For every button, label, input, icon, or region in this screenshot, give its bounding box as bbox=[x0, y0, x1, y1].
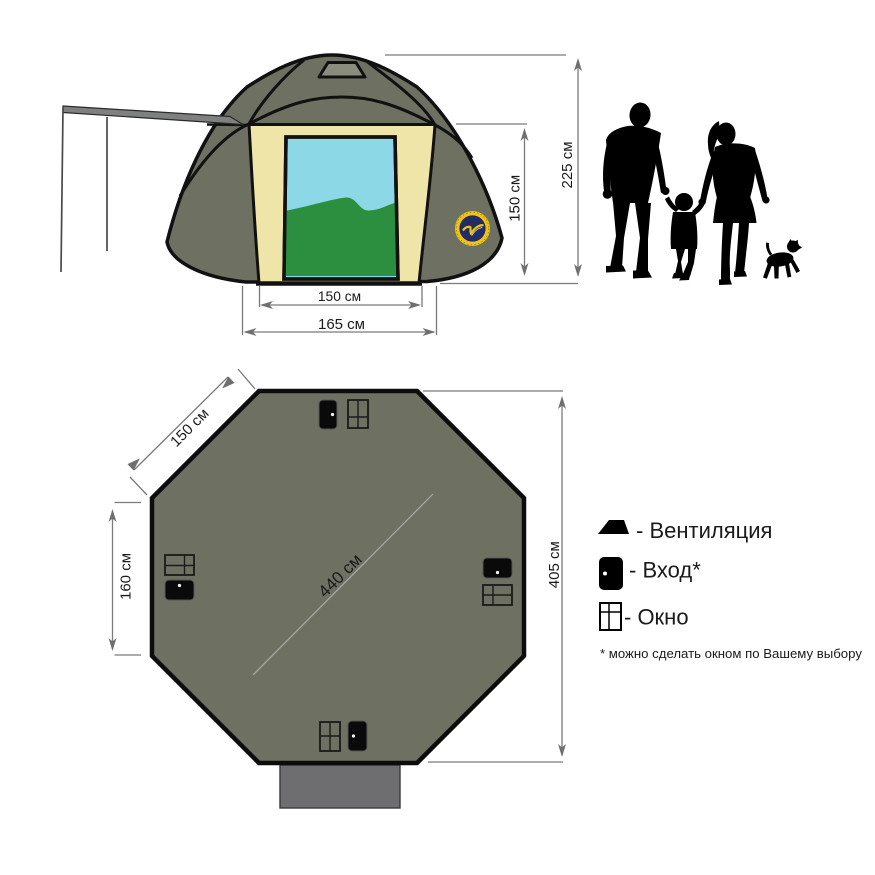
svg-text:150 см: 150 см bbox=[507, 175, 524, 222]
svg-text:405 см: 405 см bbox=[546, 541, 563, 588]
svg-text:- Вентиляция: - Вентиляция bbox=[636, 518, 772, 543]
svg-text:* можно сделать окном по Вашем: * можно сделать окном по Вашему выбору bbox=[600, 646, 862, 661]
svg-text:160 см: 160 см bbox=[117, 553, 134, 600]
svg-text:150 см: 150 см bbox=[318, 289, 361, 304]
svg-text:165 см: 165 см bbox=[318, 316, 365, 333]
svg-text:- Окно: - Окно bbox=[624, 605, 689, 630]
svg-text:- Вход*: - Вход* bbox=[629, 558, 701, 583]
svg-text:225 см: 225 см bbox=[559, 141, 576, 188]
